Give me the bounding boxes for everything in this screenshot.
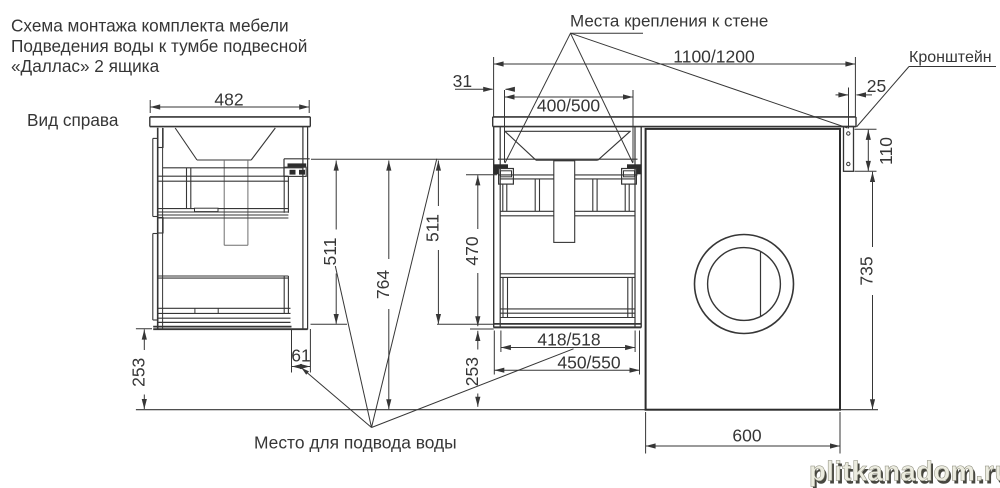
svg-text:Вид справа: Вид справа (27, 110, 119, 130)
svg-text:Кронштейн: Кронштейн (909, 49, 992, 66)
svg-text:511: 511 (422, 214, 442, 242)
svg-text:735: 735 (857, 256, 877, 285)
svg-text:400/500: 400/500 (537, 96, 601, 116)
svg-text:25: 25 (867, 76, 886, 96)
svg-text:Место для подвода воды: Место для подвода воды (254, 433, 457, 453)
svg-text:511: 511 (320, 238, 340, 266)
svg-text:764: 764 (373, 270, 393, 299)
svg-text:470: 470 (462, 236, 482, 265)
svg-text:110: 110 (876, 137, 896, 165)
svg-text:61: 61 (291, 345, 310, 365)
svg-text:1100/1200: 1100/1200 (673, 46, 755, 66)
svg-text:253: 253 (128, 358, 148, 387)
svg-text:Схема монтажа комплекта мебели: Схема монтажа комплекта мебели (11, 16, 289, 36)
svg-text:482: 482 (214, 90, 243, 110)
svg-text:«Даллас» 2 ящика: «Даллас» 2 ящика (11, 56, 160, 76)
svg-text:253: 253 (462, 357, 482, 386)
svg-text:Подведения воды к тумбе подвес: Подведения воды к тумбе подвесной (11, 36, 307, 56)
svg-text:Места крепления к стене: Места крепления к стене (570, 12, 768, 31)
svg-text:600: 600 (732, 426, 761, 446)
svg-text:418/518: 418/518 (537, 330, 600, 350)
svg-text:31: 31 (453, 71, 472, 91)
svg-text:450/550: 450/550 (557, 352, 621, 372)
svg-text:plitkanadom.ru: plitkanadom.ru (809, 456, 1000, 487)
